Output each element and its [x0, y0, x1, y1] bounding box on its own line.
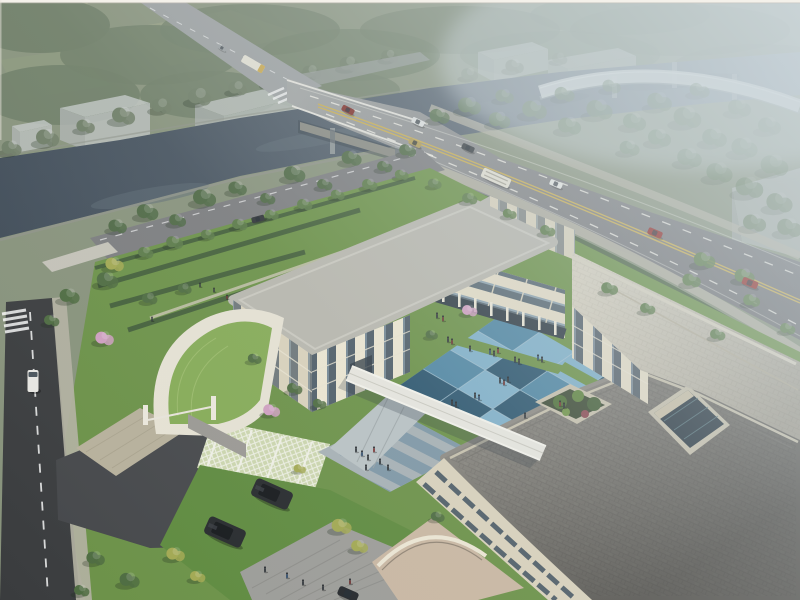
rendering-canvas: [0, 0, 800, 600]
aerial-rendering: [0, 0, 800, 600]
top-border-line: [0, 3, 800, 4]
top-border: [0, 0, 800, 3]
left-edge-line: [0, 0, 2, 140]
fog-overlay: [0, 0, 800, 600]
